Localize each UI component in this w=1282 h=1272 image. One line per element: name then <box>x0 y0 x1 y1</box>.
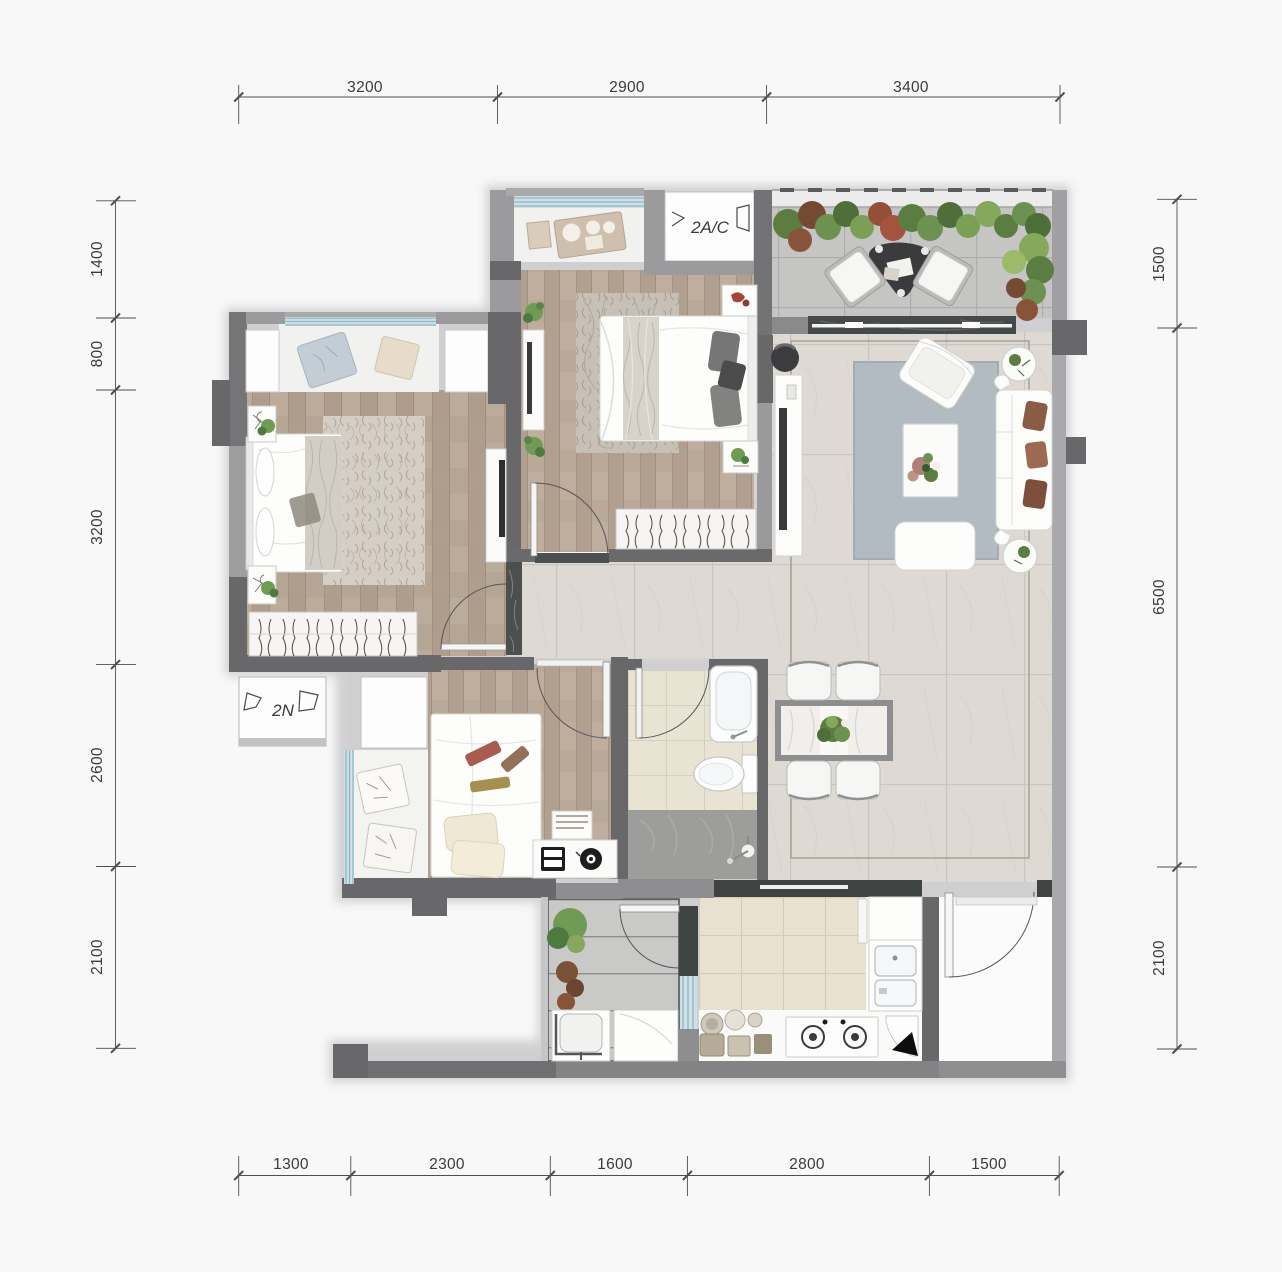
svg-text:3200: 3200 <box>347 79 383 96</box>
svg-text:1600: 1600 <box>597 1156 633 1173</box>
svg-text:2N: 2N <box>271 701 294 720</box>
svg-text:2100: 2100 <box>1151 940 1168 976</box>
svg-text:3200: 3200 <box>89 509 106 545</box>
svg-text:6500: 6500 <box>1151 579 1168 615</box>
svg-text:2600: 2600 <box>89 747 106 783</box>
svg-text:2A/C: 2A/C <box>690 218 730 237</box>
svg-text:2300: 2300 <box>429 1156 465 1173</box>
svg-text:2800: 2800 <box>789 1156 825 1173</box>
svg-text:2100: 2100 <box>89 939 106 975</box>
svg-text:800: 800 <box>89 341 106 368</box>
svg-text:1500: 1500 <box>971 1156 1007 1173</box>
svg-text:3400: 3400 <box>893 79 929 96</box>
svg-text:2900: 2900 <box>609 79 645 96</box>
svg-text:1400: 1400 <box>89 241 106 277</box>
svg-text:1500: 1500 <box>1151 246 1168 282</box>
svg-text:1300: 1300 <box>273 1156 309 1173</box>
